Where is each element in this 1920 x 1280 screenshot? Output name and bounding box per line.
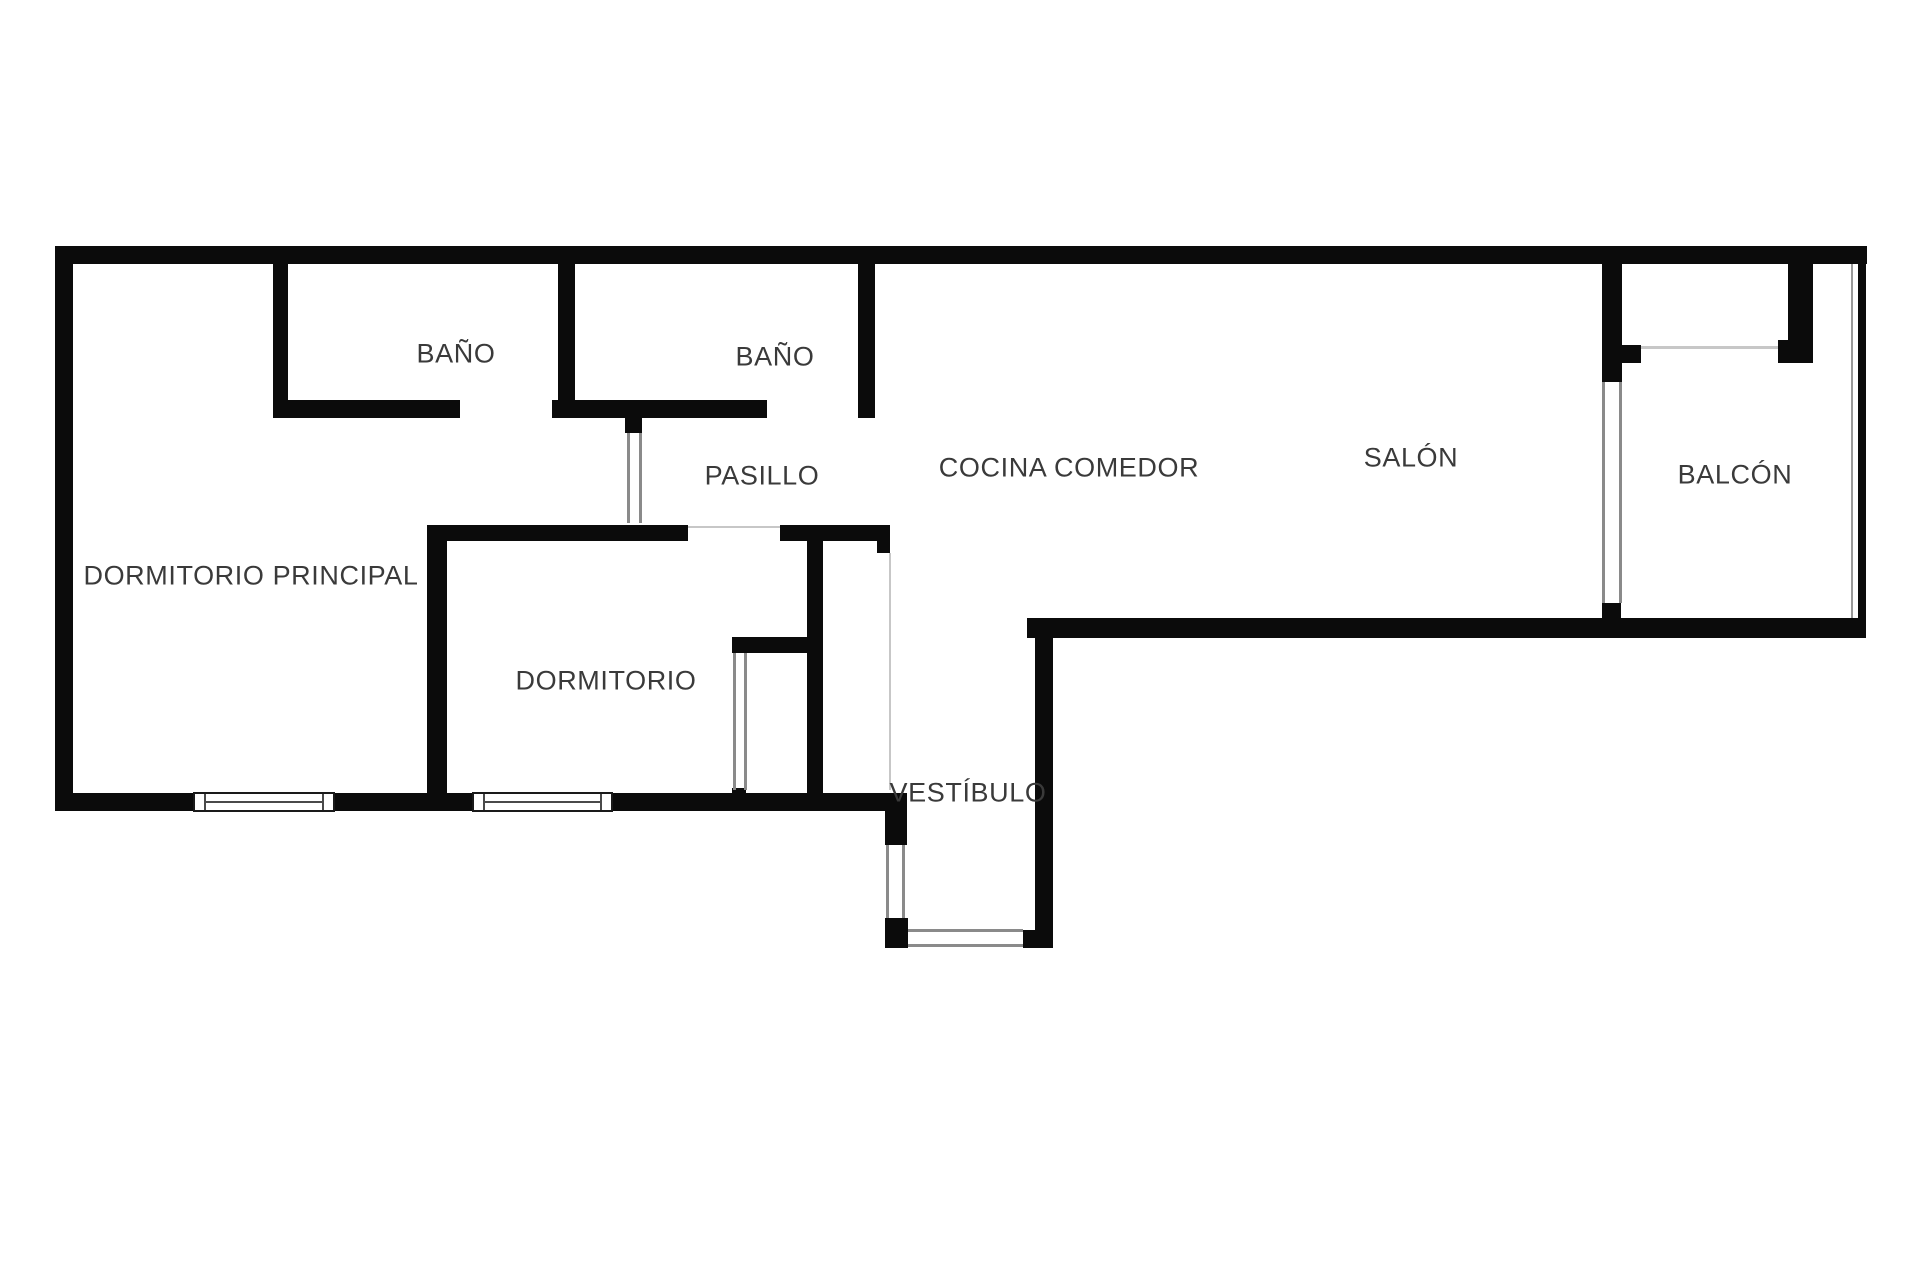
line-hall-door-frame-l bbox=[627, 433, 630, 523]
line-entrance-threshold-bot bbox=[908, 944, 1023, 947]
wall-balcony-right-foot bbox=[1778, 340, 1813, 363]
room-label-balcon: BALCÓN bbox=[1678, 460, 1793, 491]
line-balcony-door-frame-l bbox=[1602, 382, 1605, 603]
wall-bath-divider-wall bbox=[558, 264, 575, 418]
wall-bedroom-top-lip bbox=[877, 525, 890, 553]
line-closet-frame-r bbox=[744, 653, 747, 790]
wall-baths-bottom-a bbox=[273, 400, 460, 418]
line-vestibule-door-frame-r bbox=[902, 845, 905, 918]
wall-bedroom-right-wall bbox=[807, 541, 823, 793]
window-dormitorio bbox=[472, 792, 613, 812]
wall-bedroom-left-wall bbox=[427, 525, 447, 793]
room-label-bano-1: BAÑO bbox=[417, 339, 496, 370]
line-closet-frame-l bbox=[733, 653, 736, 790]
line-balcony-door-frame-r bbox=[1619, 382, 1622, 603]
wall-baths-bottom-b bbox=[552, 400, 767, 418]
line-hall-kitchen-boundary bbox=[889, 553, 891, 790]
room-label-cocina-comedor: COCINA COMEDOR bbox=[939, 453, 1199, 484]
room-label-pasillo: PASILLO bbox=[705, 461, 820, 492]
line-vestibule-door-frame-l bbox=[886, 845, 889, 918]
window-glass-line bbox=[484, 801, 601, 803]
window-jamb-icon bbox=[600, 794, 602, 810]
wall-kitchen-bottom-wall bbox=[1027, 618, 1863, 638]
wall-balcony-left-stub bbox=[1602, 603, 1621, 618]
line-bedroom-door-lintel bbox=[688, 526, 780, 528]
room-label-dormitorio: DORMITORIO bbox=[516, 666, 697, 697]
wall-vestibule-left-block bbox=[885, 918, 908, 948]
wall-top-wall bbox=[55, 246, 1867, 264]
wall-bottom-wall-c bbox=[613, 793, 887, 811]
wall-bedroom-top-wall-a bbox=[427, 525, 688, 541]
floor-plan-canvas: BAÑOBAÑOPASILLOCOCINA COMEDORSALÓNBALCÓN… bbox=[0, 0, 1920, 1280]
window-glass-line bbox=[205, 801, 323, 803]
wall-balcony-left-bar bbox=[1602, 264, 1622, 382]
wall-right-glazing-wall bbox=[1858, 246, 1866, 638]
line-hall-door-frame-r bbox=[639, 433, 642, 523]
room-label-salon: SALÓN bbox=[1364, 443, 1459, 474]
wall-balcony-right-bar bbox=[1788, 264, 1813, 340]
line-balcony-threshold bbox=[1641, 346, 1778, 349]
room-label-bano-2: BAÑO bbox=[736, 342, 815, 373]
wall-bath2-right-wall bbox=[858, 264, 875, 418]
wall-bottom-wall-a bbox=[55, 793, 193, 811]
window-jamb-icon bbox=[322, 794, 324, 810]
line-glazing-inner-line bbox=[1851, 264, 1853, 618]
wall-bottom-wall-b bbox=[335, 793, 472, 811]
wall-left-wall bbox=[55, 246, 73, 811]
wall-bath1-left-wall bbox=[273, 264, 288, 418]
room-label-dormitorio-principal: DORMITORIO PRINCIPAL bbox=[83, 561, 418, 592]
wall-bedroom-closet-stub bbox=[732, 637, 807, 653]
room-label-vestibulo: VESTÍBULO bbox=[890, 778, 1047, 809]
wall-bedroom-top-wall-b bbox=[780, 525, 890, 541]
line-entrance-threshold-top bbox=[908, 929, 1023, 932]
wall-hall-door-stub bbox=[625, 418, 642, 433]
wall-vestibule-right-block bbox=[1023, 930, 1053, 948]
window-principal bbox=[193, 792, 335, 812]
wall-balcony-left-foot bbox=[1602, 345, 1641, 363]
